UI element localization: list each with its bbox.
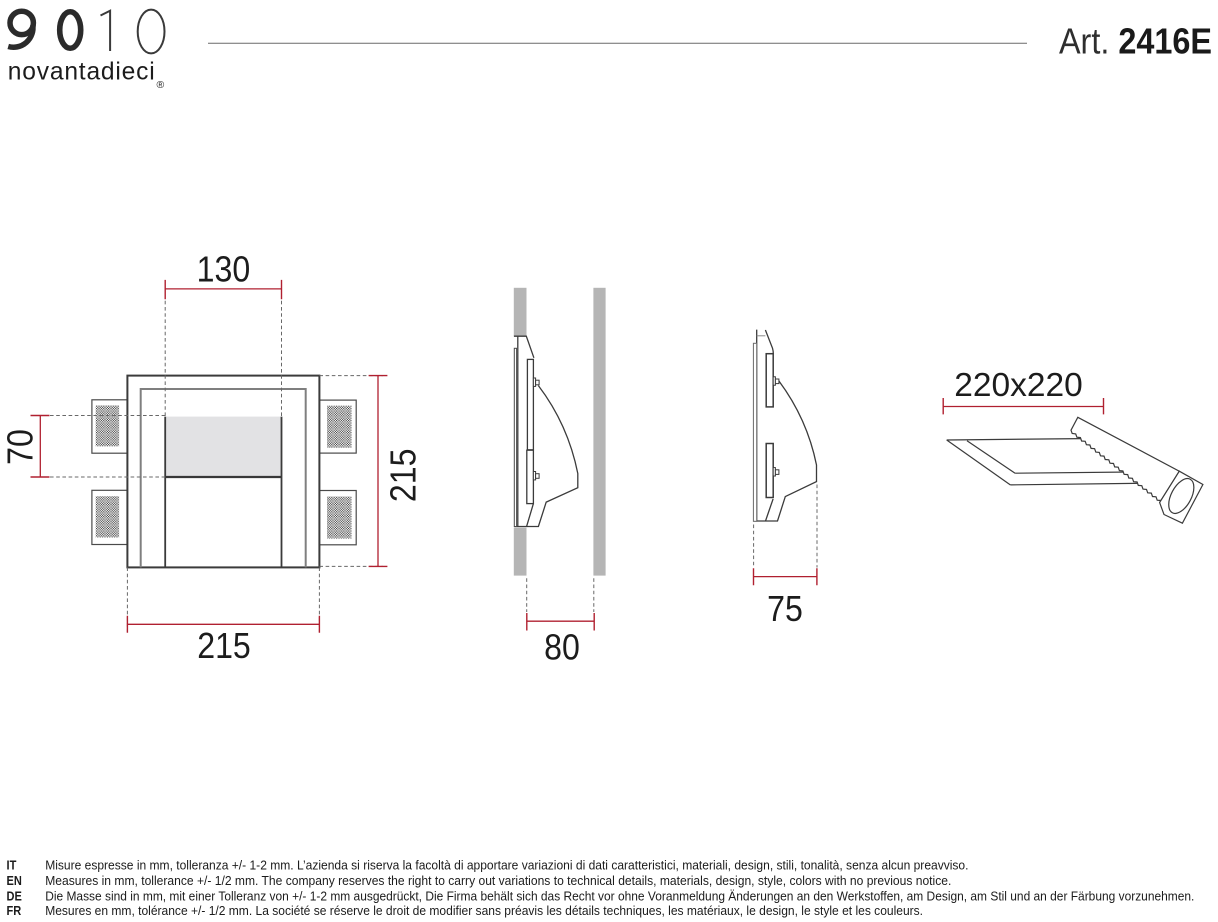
svg-text:130: 130 [197,250,251,290]
svg-text:EN: EN [7,873,22,888]
svg-text:80: 80 [544,627,580,667]
svg-text:75: 75 [767,589,803,629]
svg-text:®: ® [157,79,165,91]
svg-text:220x220: 220x220 [954,367,1083,404]
svg-text:Die Masse sind in mm, mit eine: Die Masse sind in mm, mit einer Tolleran… [45,889,1194,904]
svg-text:215: 215 [384,449,424,503]
svg-text:IT: IT [7,858,17,873]
svg-text:215: 215 [197,626,251,666]
svg-text:novantadieci: novantadieci [8,58,156,85]
svg-text:Measures in mm, tollerance +/-: Measures in mm, tollerance +/- 1/2 mm. T… [45,874,951,888]
svg-text:Misure espresse in mm, tollera: Misure espresse in mm, tolleranza +/- 1-… [45,858,968,873]
svg-text:Mesures en mm, tolérance +/- 1: Mesures en mm, tolérance +/- 1/2 mm. La … [45,904,923,919]
svg-text:DE: DE [7,888,22,903]
svg-text:70: 70 [0,429,40,465]
svg-text:Art. 2416E: Art. 2416E [1059,22,1212,62]
svg-text:FR: FR [7,903,22,918]
